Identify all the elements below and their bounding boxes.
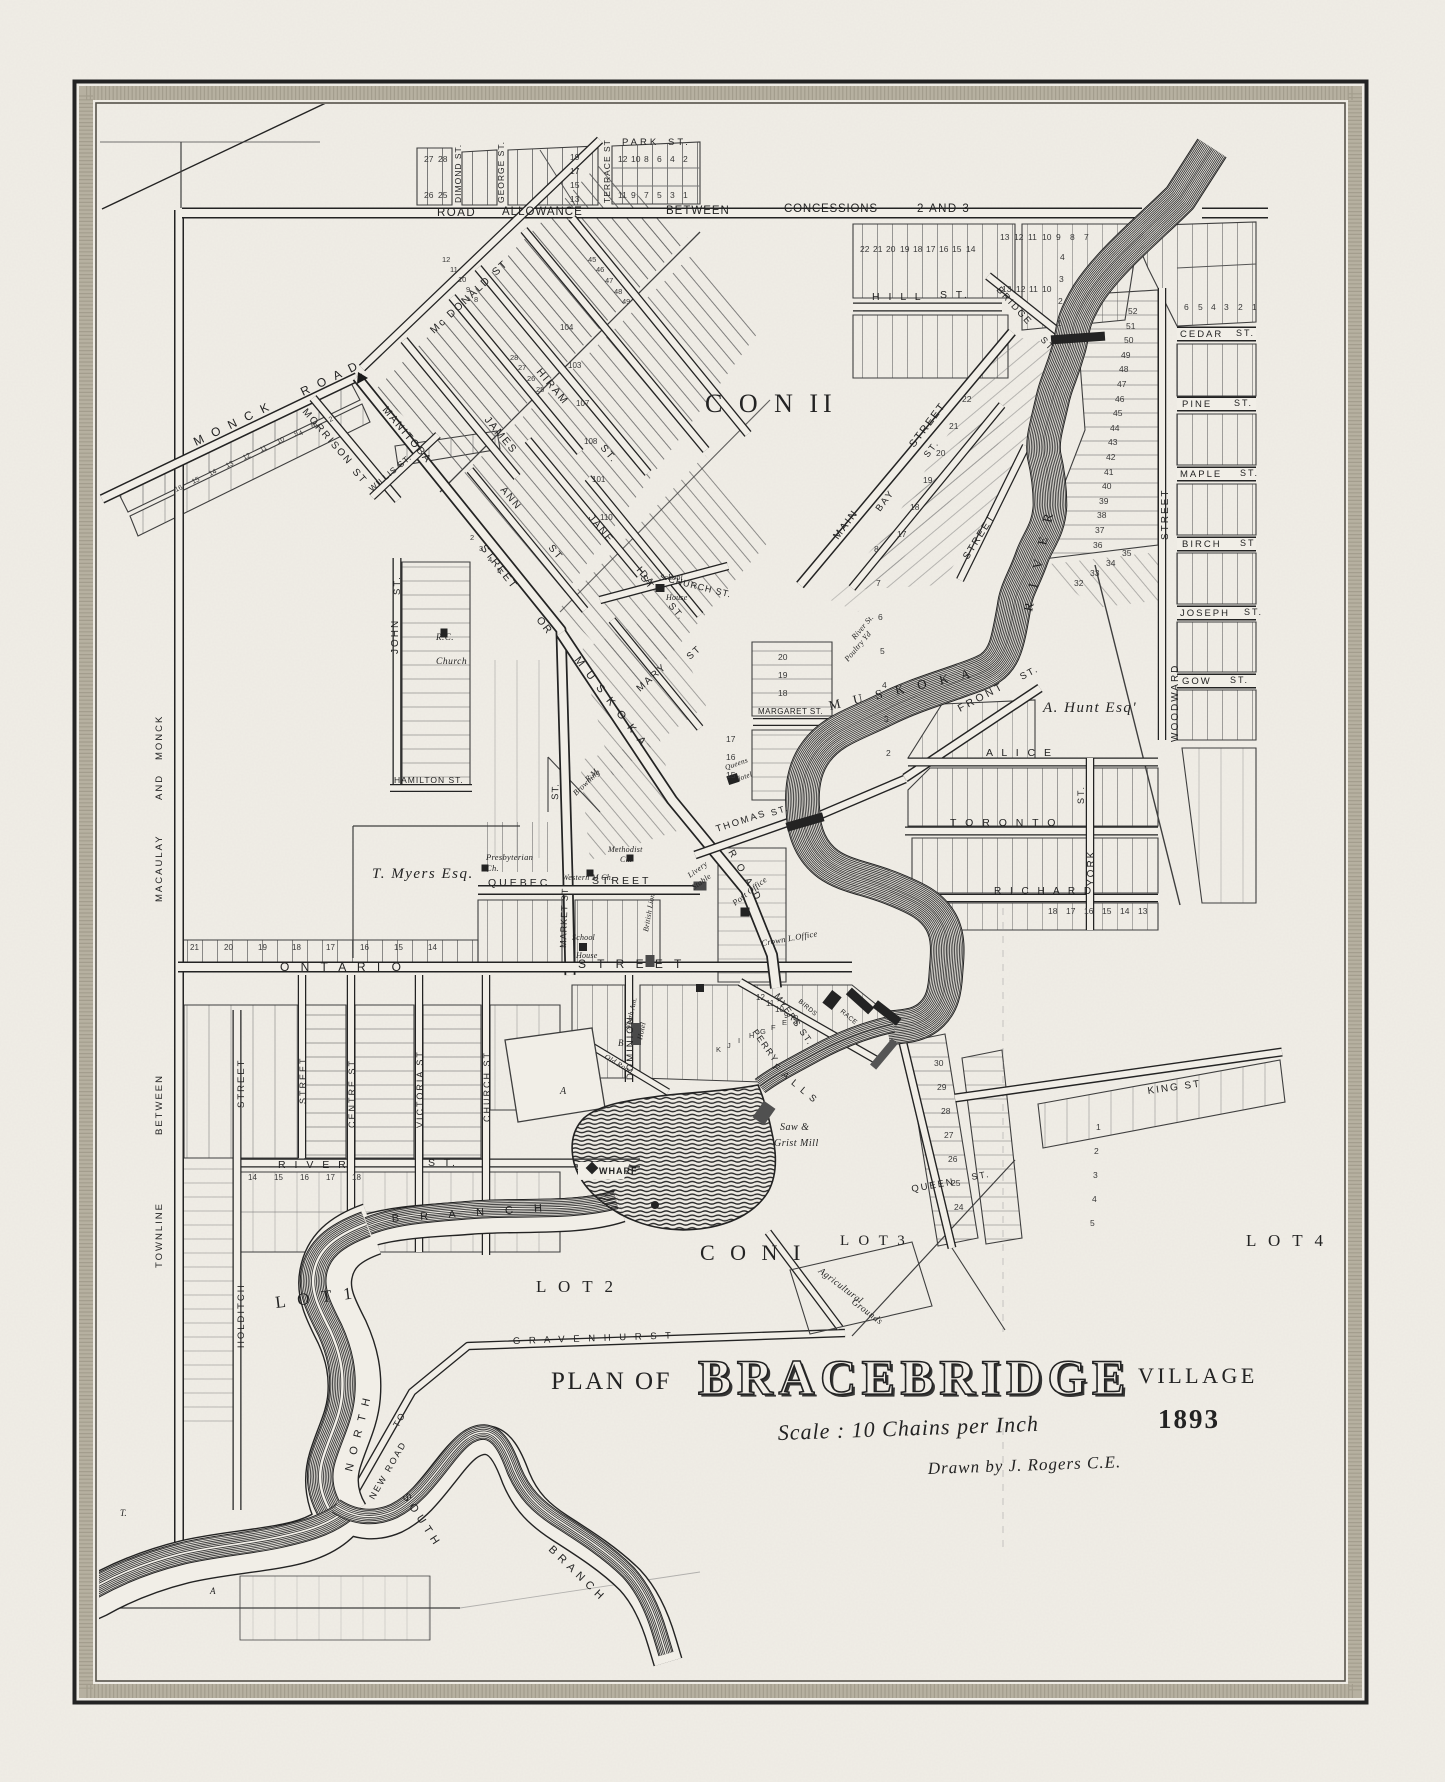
svg-text:15: 15 — [1102, 906, 1112, 916]
svg-text:CEDAR: CEDAR — [1180, 329, 1223, 340]
svg-text:Ch.: Ch. — [620, 855, 632, 864]
svg-text:T O R O N T O: T O R O N T O — [950, 817, 1058, 829]
svg-text:48: 48 — [1119, 364, 1129, 374]
svg-text:12: 12 — [442, 255, 450, 264]
svg-text:13: 13 — [1002, 284, 1012, 294]
svg-text:R I C H A R D: R I C H A R D — [994, 886, 1094, 897]
svg-text:1: 1 — [1252, 302, 1257, 312]
svg-text:36: 36 — [1093, 540, 1103, 550]
svg-text:29: 29 — [937, 1082, 947, 1092]
svg-text:7: 7 — [1084, 232, 1089, 242]
svg-text:Grist Mill: Grist Mill — [774, 1138, 819, 1149]
svg-text:47: 47 — [605, 276, 613, 285]
svg-text:19: 19 — [900, 244, 910, 254]
svg-text:S T.: S T. — [940, 289, 970, 301]
svg-text:20: 20 — [936, 448, 946, 458]
svg-text:GEORGE ST.: GEORGE ST. — [496, 141, 506, 203]
svg-text:13: 13 — [1138, 906, 1148, 916]
svg-text:16: 16 — [360, 943, 369, 952]
svg-text:19: 19 — [778, 670, 788, 680]
svg-text:26: 26 — [527, 374, 535, 383]
svg-text:ALLOWANCE: ALLOWANCE — [502, 206, 583, 218]
svg-text:8: 8 — [474, 295, 478, 304]
svg-text:44: 44 — [1110, 423, 1120, 433]
svg-text:15: 15 — [394, 943, 403, 952]
svg-text:5: 5 — [880, 646, 885, 656]
svg-text:7: 7 — [876, 578, 881, 588]
svg-text:19: 19 — [923, 475, 933, 485]
svg-text:T.: T. — [120, 1508, 127, 1518]
svg-text:43: 43 — [1108, 437, 1118, 447]
svg-text:2: 2 — [1238, 302, 1243, 312]
svg-text:ST.: ST. — [550, 783, 562, 800]
svg-text:110: 110 — [600, 513, 613, 522]
svg-text:15: 15 — [952, 244, 962, 254]
svg-text:3: 3 — [479, 544, 483, 553]
svg-text:103: 103 — [568, 361, 582, 370]
svg-text:Western M Ch.: Western M Ch. — [562, 873, 613, 882]
svg-text:12: 12 — [756, 993, 765, 1002]
svg-text:41: 41 — [1104, 467, 1114, 477]
svg-text:TERRACE ST: TERRACE ST — [602, 139, 612, 203]
svg-text:TOWNLINE: TOWNLINE — [154, 1202, 165, 1268]
svg-text:38: 38 — [1097, 510, 1107, 520]
svg-text:4: 4 — [670, 154, 675, 164]
svg-text:21: 21 — [873, 244, 883, 254]
svg-text:PLAN OF: PLAN OF — [551, 1368, 672, 1395]
svg-text:18: 18 — [913, 244, 923, 254]
svg-text:JOSEPH: JOSEPH — [1180, 608, 1230, 619]
svg-text:School: School — [660, 573, 684, 582]
svg-text:22: 22 — [962, 394, 972, 404]
svg-text:ROAD: ROAD — [437, 207, 476, 219]
svg-text:20: 20 — [224, 943, 233, 952]
svg-text:42: 42 — [1106, 452, 1116, 462]
svg-text:R.C.: R.C. — [435, 632, 454, 642]
svg-text:48: 48 — [614, 287, 622, 296]
svg-text:12: 12 — [1014, 232, 1024, 242]
svg-text:ST.: ST. — [392, 575, 403, 595]
svg-text:11: 11 — [766, 999, 775, 1008]
svg-text:3: 3 — [670, 190, 675, 200]
svg-text:18: 18 — [778, 688, 788, 698]
svg-text:26: 26 — [424, 190, 434, 200]
svg-text:STREET: STREET — [236, 1059, 247, 1108]
svg-text:BETWEEN: BETWEEN — [666, 205, 730, 217]
svg-text:2: 2 — [1094, 1146, 1099, 1156]
svg-text:28: 28 — [941, 1106, 951, 1116]
svg-text:11: 11 — [1028, 232, 1037, 242]
svg-text:15: 15 — [274, 1173, 283, 1182]
svg-text:B: B — [618, 1038, 624, 1048]
svg-text:8: 8 — [874, 544, 879, 554]
svg-text:VICTORIA ST: VICTORIA ST — [415, 1050, 425, 1128]
svg-text:T. Myers Esq.: T. Myers Esq. — [372, 866, 474, 882]
svg-text:49: 49 — [1121, 350, 1131, 360]
svg-text:52: 52 — [1128, 306, 1138, 316]
svg-text:35: 35 — [1122, 548, 1132, 558]
svg-text:L O T 4: L O T 4 — [1246, 1231, 1327, 1250]
svg-text:MONCK: MONCK — [154, 715, 165, 760]
svg-text:A L I C E: A L I C E — [986, 747, 1054, 759]
svg-text:20: 20 — [886, 244, 896, 254]
svg-text:16: 16 — [1084, 906, 1094, 916]
svg-text:34: 34 — [1106, 558, 1116, 568]
svg-text:28: 28 — [510, 353, 518, 362]
svg-text:1: 1 — [1057, 318, 1062, 328]
svg-text:F: F — [771, 1023, 776, 1032]
svg-text:8: 8 — [644, 154, 649, 164]
svg-text:16: 16 — [726, 752, 736, 762]
svg-text:10: 10 — [1042, 284, 1052, 294]
svg-text:L O T 2: L O T 2 — [536, 1277, 617, 1296]
svg-text:Church: Church — [436, 657, 467, 667]
svg-text:21: 21 — [190, 943, 199, 952]
svg-text:J: J — [727, 1041, 731, 1050]
svg-text:4: 4 — [488, 555, 492, 564]
svg-text:46: 46 — [1115, 394, 1125, 404]
svg-text:DIMOND ST.: DIMOND ST. — [453, 144, 463, 203]
svg-text:25: 25 — [951, 1178, 961, 1188]
svg-text:10: 10 — [631, 154, 641, 164]
svg-text:5: 5 — [1198, 302, 1203, 312]
svg-text:6: 6 — [1184, 302, 1189, 312]
svg-text:ST.: ST. — [1240, 468, 1259, 478]
svg-text:ST.: ST. — [668, 137, 691, 148]
svg-text:13: 13 — [1000, 232, 1010, 242]
svg-text:25: 25 — [438, 190, 448, 200]
svg-text:30: 30 — [934, 1058, 944, 1068]
svg-text:WHARF: WHARF — [599, 1166, 638, 1176]
svg-text:O N T A R I O: O N T A R I O — [280, 960, 405, 974]
svg-text:14: 14 — [248, 1173, 257, 1182]
svg-text:9: 9 — [631, 190, 636, 200]
svg-text:GOW: GOW — [1182, 676, 1212, 687]
svg-text:27: 27 — [424, 154, 434, 164]
svg-text:School: School — [572, 933, 596, 942]
svg-text:I: I — [738, 1036, 740, 1045]
svg-text:BIRCH: BIRCH — [1182, 539, 1222, 550]
svg-text:1: 1 — [1096, 1122, 1101, 1132]
svg-text:47: 47 — [1117, 379, 1127, 389]
svg-text:14: 14 — [428, 943, 437, 952]
svg-text:4: 4 — [1092, 1194, 1097, 1204]
svg-text:17: 17 — [926, 244, 936, 254]
svg-text:R I V E R: R I V E R — [278, 1159, 349, 1171]
svg-text:Saw &: Saw & — [780, 1122, 809, 1133]
svg-text:20: 20 — [778, 652, 788, 662]
svg-text:3: 3 — [1093, 1170, 1098, 1180]
svg-text:17: 17 — [897, 529, 907, 539]
svg-text:MAPLE: MAPLE — [1180, 469, 1222, 480]
svg-text:18: 18 — [292, 943, 301, 952]
svg-text:16: 16 — [300, 1173, 309, 1182]
svg-text:15: 15 — [726, 770, 736, 780]
svg-text:House: House — [665, 593, 688, 602]
svg-text:11: 11 — [1029, 284, 1038, 294]
svg-text:1893: 1893 — [1158, 1404, 1220, 1434]
svg-text:108: 108 — [584, 437, 598, 446]
svg-text:Ch.: Ch. — [486, 863, 499, 873]
svg-text:101: 101 — [592, 475, 606, 484]
svg-text:3: 3 — [884, 714, 889, 724]
svg-text:ST.: ST. — [1230, 675, 1249, 685]
svg-text:45: 45 — [588, 255, 596, 264]
svg-text:MARGARET ST.: MARGARET ST. — [758, 707, 823, 716]
svg-text:32: 32 — [1074, 578, 1084, 588]
svg-text:14: 14 — [1120, 906, 1130, 916]
svg-text:107: 107 — [576, 399, 590, 408]
svg-text:3: 3 — [1224, 302, 1229, 312]
svg-text:12: 12 — [618, 154, 628, 164]
svg-text:MARKET ST: MARKET ST — [558, 887, 570, 948]
svg-text:A: A — [209, 1586, 216, 1596]
svg-text:51: 51 — [1126, 321, 1136, 331]
svg-text:50: 50 — [1124, 335, 1134, 345]
svg-text:11: 11 — [450, 265, 458, 274]
svg-text:14: 14 — [966, 244, 976, 254]
svg-text:PARK: PARK — [622, 137, 659, 148]
svg-text:45: 45 — [1113, 408, 1123, 418]
svg-text:2: 2 — [1058, 296, 1063, 306]
svg-text:33: 33 — [1090, 568, 1100, 578]
svg-text:G: G — [760, 1027, 766, 1036]
svg-text:S T R E E T: S T R E E T — [578, 957, 685, 971]
svg-text:Presbyterian: Presbyterian — [485, 852, 533, 862]
svg-text:19: 19 — [570, 152, 580, 162]
svg-text:16: 16 — [939, 244, 949, 254]
svg-text:H: H — [749, 1031, 754, 1040]
svg-text:MACAULAY: MACAULAY — [154, 834, 165, 902]
svg-text:6: 6 — [657, 154, 662, 164]
svg-text:AND: AND — [154, 774, 165, 800]
svg-text:CHURCH ST.: CHURCH ST. — [482, 1047, 492, 1122]
svg-text:5: 5 — [1090, 1218, 1095, 1228]
svg-text:BRACEBRIDGE: BRACEBRIDGE — [698, 1349, 1131, 1405]
svg-text:2: 2 — [470, 533, 474, 542]
svg-text:BETWEEN: BETWEEN — [154, 1074, 165, 1135]
svg-text:9: 9 — [1056, 232, 1061, 242]
svg-text:7: 7 — [644, 190, 649, 200]
svg-text:YORK: YORK — [1086, 850, 1097, 886]
svg-text:26: 26 — [948, 1154, 958, 1164]
svg-text:2: 2 — [683, 154, 688, 164]
svg-text:K: K — [716, 1045, 721, 1054]
svg-text:10: 10 — [1042, 232, 1052, 242]
svg-text:11: 11 — [618, 190, 627, 200]
svg-text:1: 1 — [683, 190, 688, 200]
svg-text:18: 18 — [1048, 906, 1058, 916]
svg-text:ST.: ST. — [1236, 328, 1255, 338]
svg-text:C O N I: C O N I — [700, 1240, 805, 1265]
svg-text:ST.: ST. — [1076, 785, 1086, 804]
svg-text:STREET: STREET — [298, 1056, 308, 1104]
svg-text:4: 4 — [882, 680, 887, 690]
svg-text:4: 4 — [1211, 302, 1216, 312]
svg-text:25: 25 — [536, 385, 544, 394]
svg-text:D: D — [793, 1013, 799, 1022]
svg-text:104: 104 — [560, 323, 574, 332]
svg-text:17: 17 — [326, 1173, 335, 1182]
svg-text:ST.: ST. — [1244, 607, 1263, 617]
svg-text:5: 5 — [497, 566, 501, 575]
svg-text:17: 17 — [1066, 906, 1076, 916]
svg-text:46: 46 — [596, 265, 604, 274]
svg-text:CONCESSIONS: CONCESSIONS — [784, 203, 878, 215]
svg-text:E: E — [782, 1018, 787, 1027]
svg-text:24: 24 — [954, 1202, 964, 1212]
svg-text:A. Hunt Esq': A. Hunt Esq' — [1042, 700, 1137, 716]
svg-text:A: A — [559, 1086, 567, 1097]
svg-text:STREET: STREET — [1160, 489, 1171, 540]
svg-text:39: 39 — [1099, 496, 1109, 506]
svg-text:15: 15 — [570, 180, 580, 190]
svg-text:2: 2 — [886, 748, 891, 758]
svg-text:H I L L: H I L L — [872, 291, 924, 303]
svg-text:S T.: S T. — [428, 1157, 458, 1169]
svg-text:49: 49 — [622, 297, 630, 306]
svg-text:13: 13 — [570, 194, 580, 204]
svg-text:12: 12 — [1016, 284, 1026, 294]
svg-text:37: 37 — [1095, 525, 1105, 535]
svg-text:CENTRE ST: CENTRE ST — [347, 1059, 357, 1128]
svg-text:17: 17 — [570, 166, 580, 176]
svg-text:5: 5 — [657, 190, 662, 200]
svg-text:4: 4 — [1060, 252, 1065, 262]
svg-text:19: 19 — [258, 943, 267, 952]
svg-text:3: 3 — [1059, 274, 1064, 284]
svg-text:18: 18 — [910, 502, 920, 512]
svg-text:JOHN: JOHN — [390, 619, 401, 654]
svg-text:21: 21 — [949, 421, 959, 431]
svg-text:40: 40 — [1102, 481, 1112, 491]
svg-text:ST: ST — [1240, 538, 1256, 548]
svg-text:HOLDITCH: HOLDITCH — [236, 1283, 247, 1348]
svg-text:10: 10 — [458, 275, 466, 284]
svg-text:QUEBEC: QUEBEC — [488, 877, 550, 889]
svg-text:8: 8 — [1070, 232, 1075, 242]
svg-text:WOODWARD: WOODWARD — [1170, 664, 1181, 742]
svg-text:27: 27 — [944, 1130, 954, 1140]
svg-text:VILLAGE: VILLAGE — [1138, 1363, 1258, 1388]
svg-text:ST.: ST. — [1234, 398, 1253, 408]
svg-text:18: 18 — [352, 1173, 361, 1182]
svg-text:17: 17 — [326, 943, 335, 952]
svg-text:6: 6 — [878, 612, 883, 622]
svg-text:28: 28 — [438, 154, 448, 164]
svg-text:27: 27 — [518, 363, 526, 372]
svg-text:PINE: PINE — [1182, 399, 1212, 410]
svg-text:17: 17 — [726, 734, 736, 744]
svg-text:HAMILTON ST.: HAMILTON ST. — [394, 775, 464, 785]
svg-text:2 AND 3: 2 AND 3 — [917, 203, 970, 215]
svg-text:22: 22 — [860, 244, 870, 254]
svg-text:L O T 3: L O T 3 — [840, 1233, 908, 1249]
svg-text:C O N II: C O N II — [705, 389, 837, 418]
svg-text:Methodist: Methodist — [607, 845, 643, 854]
svg-text:9: 9 — [466, 285, 470, 294]
